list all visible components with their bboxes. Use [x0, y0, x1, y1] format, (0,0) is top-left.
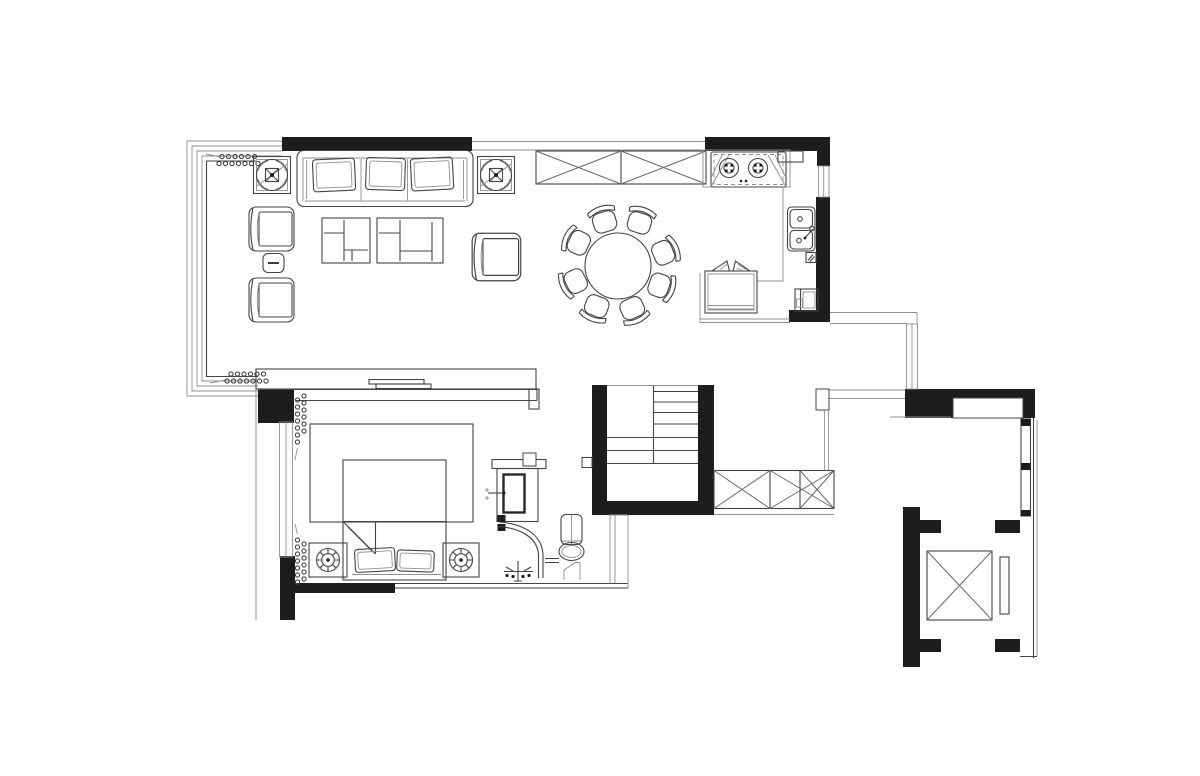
counter-edge [757, 187, 783, 281]
service-cabinet [795, 289, 818, 311]
side-table [263, 254, 284, 273]
floor-plan-canvas [0, 0, 1200, 776]
toilet [559, 515, 584, 581]
floor-plan-page [0, 0, 1200, 776]
nightstand [443, 543, 479, 577]
dish-rack-icon [712, 261, 750, 271]
staircase-up [607, 386, 698, 464]
three-seat-sofa [297, 151, 473, 207]
cooktop-counter [703, 150, 803, 187]
lobby-sliding-door [1020, 418, 1037, 658]
dining-armchair [472, 233, 521, 281]
burner [720, 159, 739, 178]
sliding-wardrobe [256, 369, 536, 389]
lounge-armchair [249, 207, 294, 251]
curtain-bead-row-top [206, 154, 260, 166]
sofa-cushion [365, 157, 405, 190]
elevator-shaft [927, 551, 1009, 620]
dining-chair [648, 234, 683, 270]
x-brace-railing [714, 471, 834, 509]
round-dining-table [585, 233, 651, 299]
glass-shower-screen [499, 522, 543, 578]
lamp-icon [317, 549, 340, 572]
double-sink [788, 207, 816, 251]
dining-set [555, 203, 683, 329]
dining-chair [587, 203, 621, 236]
double-bed [343, 460, 446, 581]
floor-drain-icon [806, 253, 816, 263]
bedroom-window [280, 422, 293, 557]
area-rug [310, 424, 473, 522]
wall-niche [953, 398, 1023, 418]
sofa-cushion [312, 158, 355, 192]
coffee-table [322, 218, 370, 263]
bathroom-door [485, 453, 546, 531]
handrail-post [582, 458, 592, 468]
dining-chair [623, 204, 657, 237]
corridor-window [907, 324, 918, 389]
shower-set-icon [504, 561, 533, 581]
partition-lines [256, 142, 951, 621]
sofa-cushion [410, 157, 454, 191]
burner [749, 159, 768, 178]
x-front-sideboard [536, 151, 706, 184]
pillow [397, 550, 435, 572]
ceiling-fan-icon [478, 157, 515, 194]
pillow [354, 547, 395, 572]
partition-stub [545, 559, 559, 563]
coffee-table [377, 218, 443, 263]
kitchen-window [819, 166, 830, 197]
nightstand [309, 543, 347, 577]
island-cabinet [705, 261, 757, 313]
lounge-armchair [249, 278, 294, 322]
curtain-bead-column-bedroom [295, 394, 306, 584]
counter-box [778, 151, 803, 162]
elevator-door-panel [1000, 557, 1009, 614]
lamp-icon [450, 549, 473, 572]
dining-chair [558, 223, 593, 259]
structural-walls [258, 137, 1035, 667]
